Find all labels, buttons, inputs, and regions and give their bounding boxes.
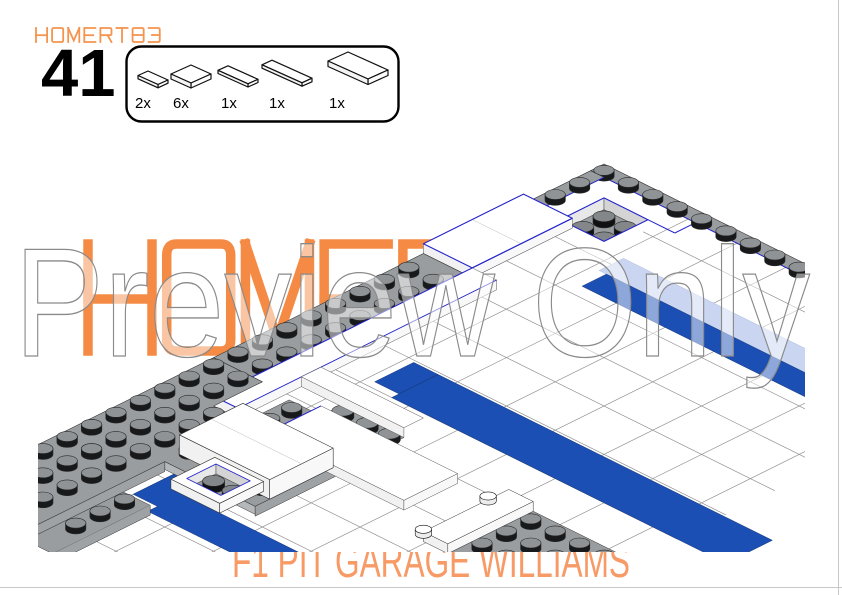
svg-text:1x: 1x — [269, 95, 285, 112]
svg-text:6x: 6x — [173, 95, 189, 112]
svg-text:1x: 1x — [221, 95, 237, 112]
svg-text:2x: 2x — [135, 95, 151, 112]
svg-text:1x: 1x — [329, 95, 345, 112]
svg-text:Preview Only: Preview Only — [14, 216, 810, 389]
svg-text:41: 41 — [41, 36, 116, 111]
